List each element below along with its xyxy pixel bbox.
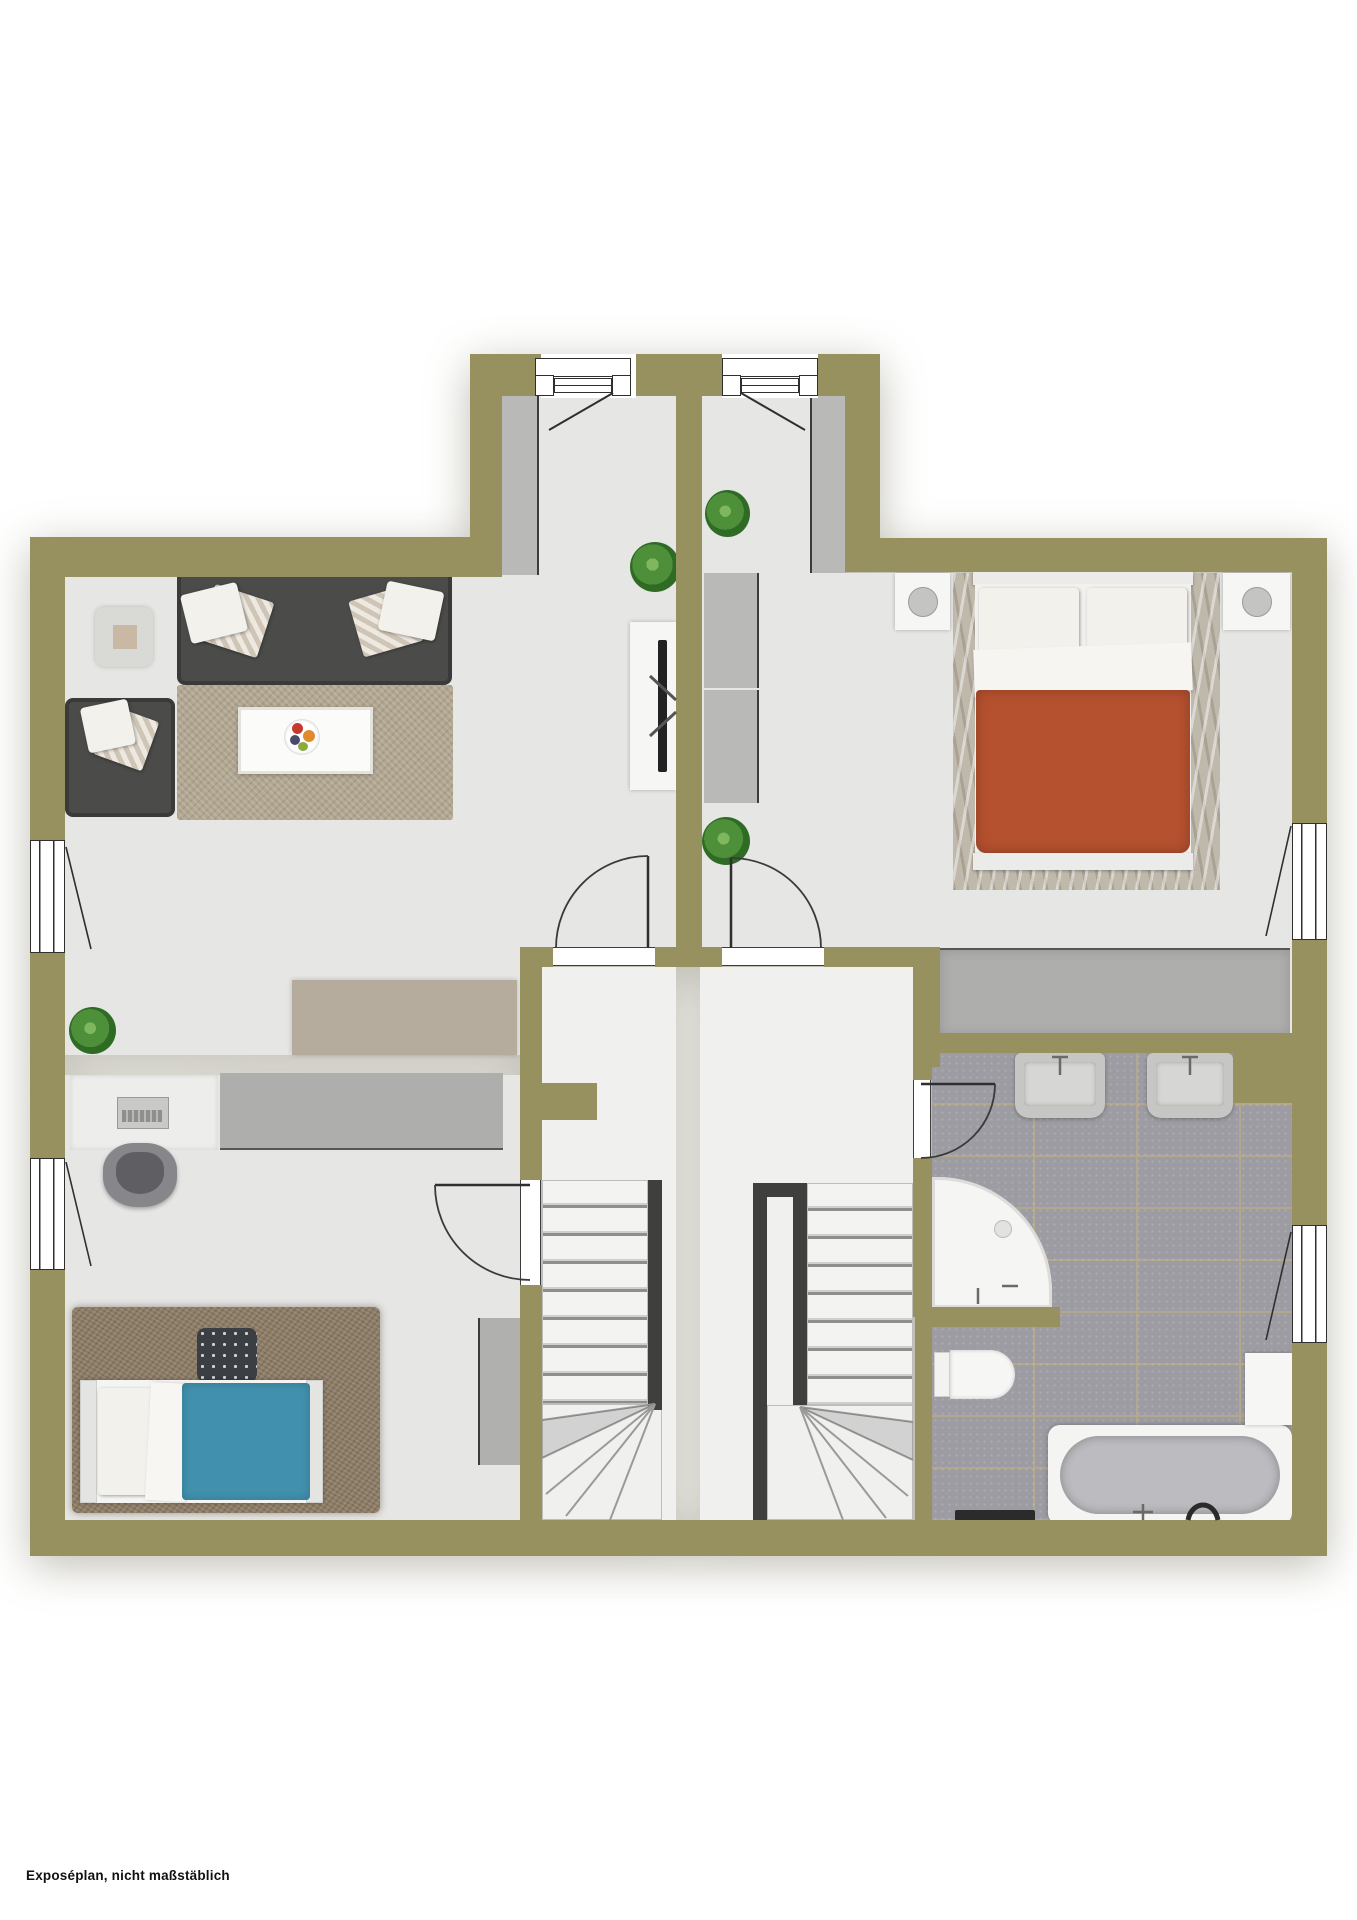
bathroom-door-threshold xyxy=(913,1080,931,1158)
fruit-orange xyxy=(303,730,315,742)
loveseat-pillow-white xyxy=(80,699,137,754)
toilet-bowl xyxy=(950,1350,1015,1399)
staircase-right-handrail-outer xyxy=(753,1183,767,1527)
floorplan-building xyxy=(0,0,1357,1920)
wall-stairhall-left-a xyxy=(520,947,542,1180)
bed-blanket-red xyxy=(976,690,1190,853)
wall-top-left xyxy=(30,537,502,577)
wall-outer-left-a xyxy=(30,577,65,840)
wall-bath-west-a xyxy=(913,1067,932,1080)
potted-plant-living xyxy=(69,1007,116,1054)
fruit-apple xyxy=(292,723,303,734)
nightstand-lamp-right xyxy=(1242,587,1272,617)
entry-door-right-hinge-b xyxy=(799,375,818,396)
side-table-tray xyxy=(113,625,137,649)
hall-door-left-threshold xyxy=(553,947,655,966)
kids-pouf xyxy=(197,1328,257,1382)
floorplan-page: Exposéplan, nicht maßstäblich xyxy=(0,0,1357,1920)
bed-pillow-left xyxy=(979,588,1079,652)
bathroom-sink-1-basin xyxy=(1024,1062,1096,1106)
entry-door-right-hinge-a xyxy=(722,375,741,396)
bathroom-cabinet xyxy=(1245,1353,1292,1425)
potted-plant-hall-right-bottom xyxy=(702,817,750,865)
wall-top-right xyxy=(845,538,1327,572)
wall-bath-north xyxy=(930,1033,1292,1053)
wall-outer-left-b xyxy=(30,953,65,1158)
kids-room-door-threshold xyxy=(520,1180,541,1285)
tv-sideboard xyxy=(630,622,676,790)
staircase-left-winders xyxy=(542,1404,662,1520)
fruit-lime xyxy=(298,742,308,751)
nightstand-lamp-left xyxy=(908,587,938,617)
wall-doorwall-b xyxy=(655,947,722,967)
desk-chair-seat xyxy=(116,1152,164,1194)
shower-drain xyxy=(994,1220,1012,1238)
staircase-left-straight xyxy=(542,1180,648,1404)
kids-tall-cabinet xyxy=(478,1318,522,1465)
wall-outer-right-b xyxy=(1292,940,1327,1225)
wall-bath-west-b xyxy=(913,1158,932,1317)
staircase-right-handrail-inner xyxy=(793,1183,807,1405)
staircase-left-handrail xyxy=(648,1180,662,1410)
wall-stairhall-left-b xyxy=(520,1285,542,1520)
living-room-window xyxy=(30,840,65,953)
entry-door-right-leaf xyxy=(741,378,799,393)
bathroom-window xyxy=(1292,1225,1327,1343)
wall-bottom xyxy=(30,1520,1327,1556)
entry-door-left-leaf xyxy=(554,378,612,393)
bedroom-dresser xyxy=(940,948,1290,1035)
living-lowboard xyxy=(292,980,517,1055)
wall-bath-pillar xyxy=(1233,1053,1292,1103)
entry-wardrobe-left xyxy=(502,396,539,575)
kids-bed-blanket-blue xyxy=(182,1383,310,1500)
wall-bath-stub xyxy=(932,1307,1060,1327)
bathroom-sink-2-basin xyxy=(1156,1062,1224,1106)
potted-plant-hall-left xyxy=(630,542,680,592)
hall-door-right-threshold xyxy=(722,947,824,966)
bedroom-wardrobe-module-1 xyxy=(704,573,759,688)
tv-screen xyxy=(658,640,667,772)
wall-hall-divider xyxy=(676,396,702,967)
kids-room-window xyxy=(30,1158,65,1270)
double-bed-footboard xyxy=(973,853,1193,870)
bedroom-wardrobe-module-2 xyxy=(704,690,759,803)
potted-plant-hall-right-top xyxy=(705,490,750,537)
entry-door-left-hinge-b xyxy=(612,375,631,396)
double-bed-headboard xyxy=(973,570,1193,585)
wall-stub-left xyxy=(542,1083,597,1120)
bedroom-window xyxy=(1292,823,1327,940)
laptop-keyboard xyxy=(122,1110,162,1122)
wall-bath-west-c xyxy=(915,1317,932,1520)
plan-footnote: Exposéplan, nicht maßstäblich xyxy=(26,1868,230,1883)
wall-outer-left-c xyxy=(30,1270,65,1556)
wall-tower-top-b xyxy=(636,354,722,396)
toilet-tank xyxy=(934,1352,950,1397)
entry-door-left-hinge-a xyxy=(535,375,554,396)
wall-doorwall-c xyxy=(824,947,940,967)
staircase-right-straight xyxy=(807,1183,913,1405)
kids-sideboard xyxy=(220,1073,503,1150)
staircase-right-winders xyxy=(767,1405,913,1520)
entry-wardrobe-right xyxy=(810,396,847,573)
wall-outer-right-a xyxy=(1292,538,1327,823)
kids-bed-headboard xyxy=(80,1380,97,1503)
bathtub-inner xyxy=(1060,1436,1280,1514)
